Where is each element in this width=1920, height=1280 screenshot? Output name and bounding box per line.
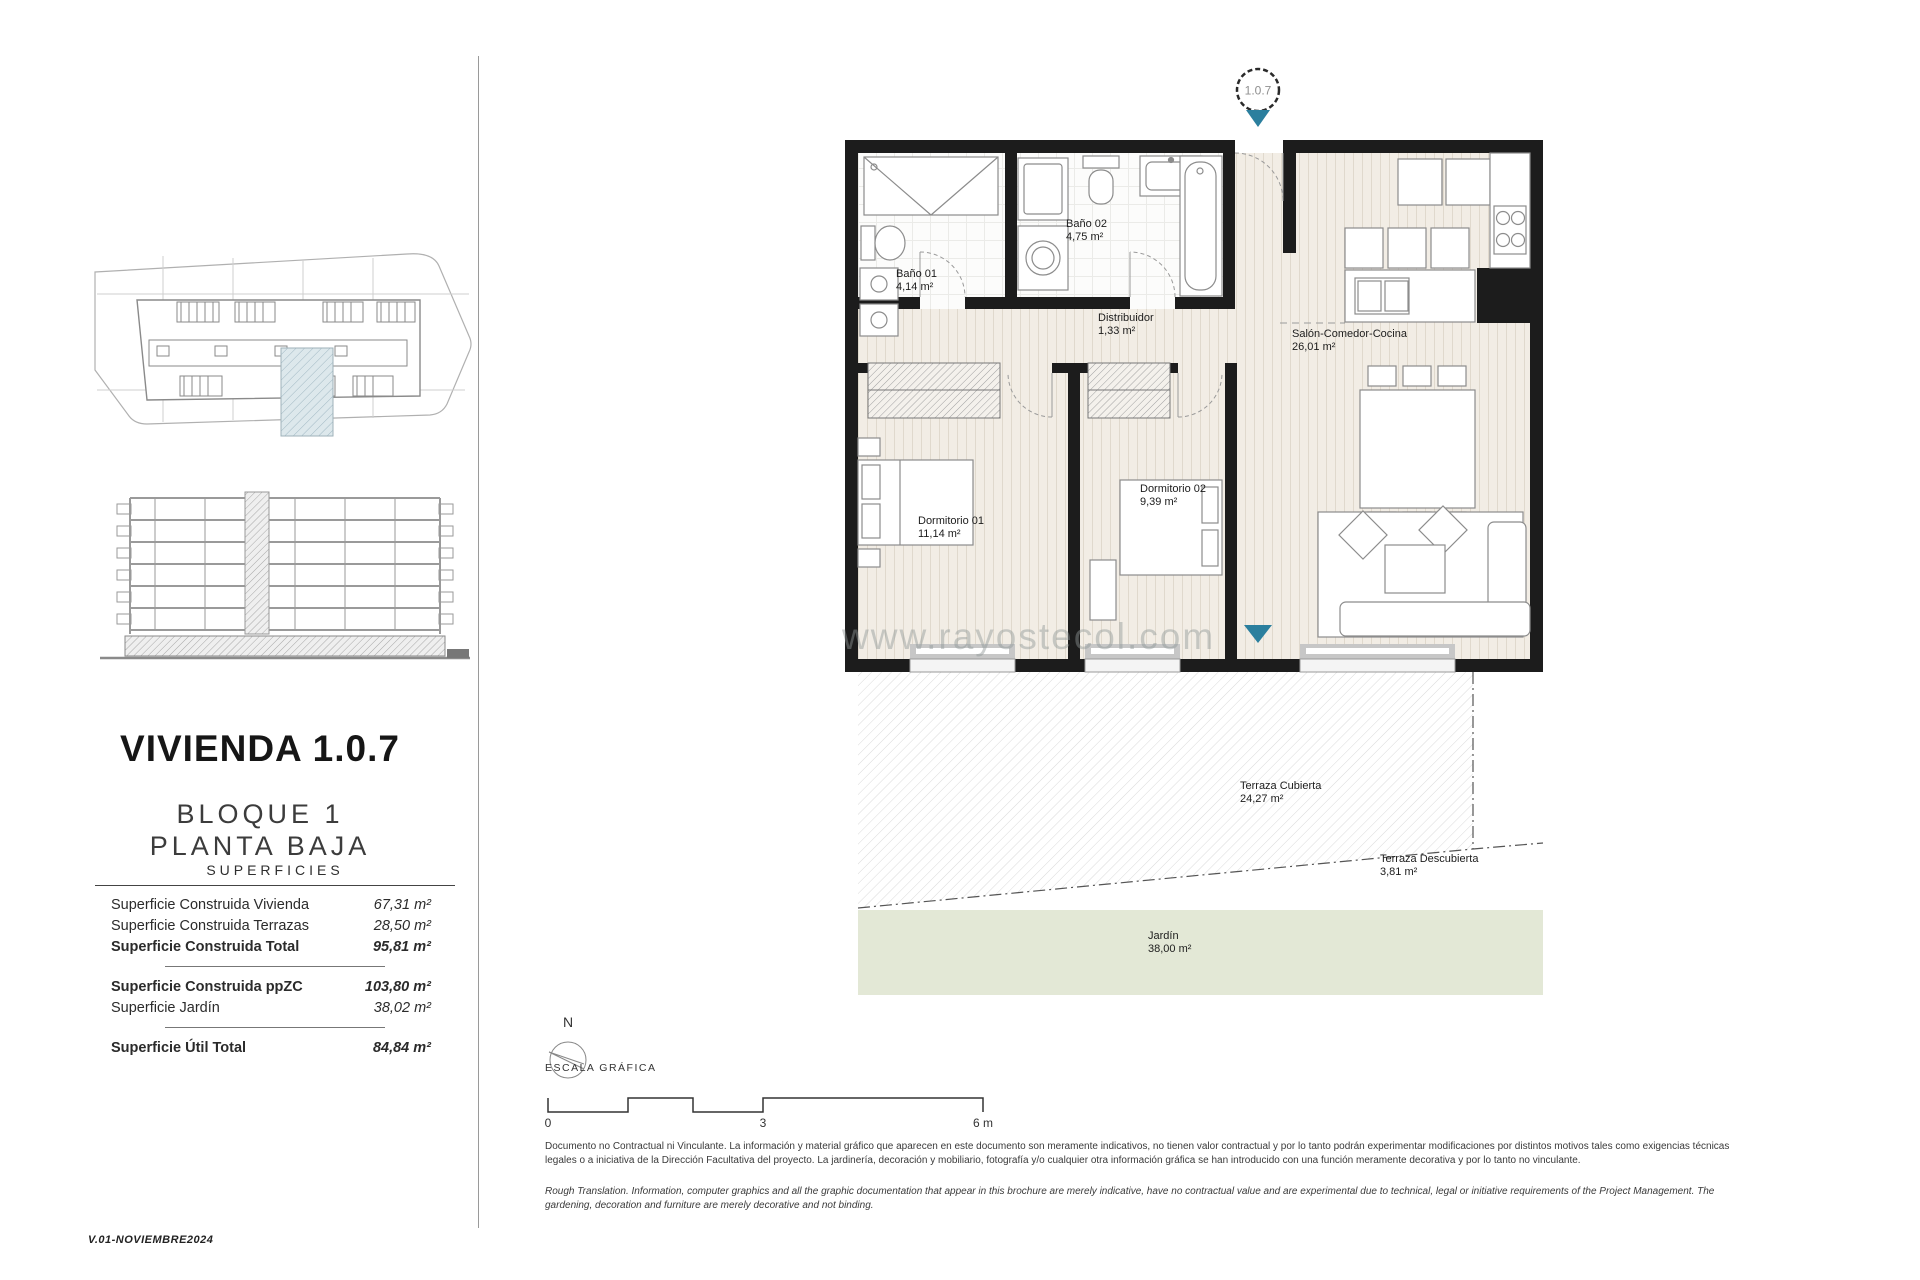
unit-subtitle: BLOQUE 1 PLANTA BAJA (40, 798, 480, 863)
scale-label: ESCALA GRÁFICA (545, 1062, 656, 1074)
room-label-terraza-cubierta: Terraza Cubierta 24,27 m² (1240, 780, 1321, 806)
garden-zone (858, 910, 1543, 995)
floor-plan: 1.0.7 Baño 01 4,14 m² Baño 02 4,75 m² Di… (840, 60, 1550, 1000)
room-label-distribuidor: Distribuidor 1,33 m² (1098, 312, 1154, 338)
unit-title: VIVIENDA 1.0.7 (40, 728, 480, 770)
superficies-table: SUPERFICIES Superficie Construida Vivien… (95, 862, 455, 1058)
block-label: BLOQUE 1 (40, 798, 480, 830)
row-label: Superficie Construida Total (111, 939, 299, 955)
room-label-bano-02: Baño 02 4,75 m² (1066, 218, 1107, 244)
version-stamp: V.01-NOVIEMBRE2024 (88, 1234, 213, 1246)
building-elevation-drawing (95, 468, 475, 708)
row-value: 84,84 m² (373, 1040, 431, 1056)
superficies-row: Superficie Jardín 38,02 m² (95, 997, 455, 1018)
rule (165, 966, 385, 967)
room-label-bano-01: Baño 01 4,14 m² (896, 268, 937, 294)
site-key-plan (85, 228, 475, 438)
north-label: N (563, 1014, 573, 1030)
superficies-row-total: Superficie Construida Total 95,81 m² (95, 936, 455, 957)
disclaimer-english: Rough Translation. Information, computer… (545, 1185, 1745, 1212)
floor-plan-page: VIVIENDA 1.0.7 BLOQUE 1 PLANTA BAJA SUPE… (0, 0, 1920, 1280)
scale-tick-6: 6 m (973, 1116, 993, 1130)
floor-label: PLANTA BAJA (40, 830, 480, 862)
scale-tick-3: 3 (760, 1116, 767, 1130)
scale-bar: 0 3 6 m (540, 1086, 1000, 1132)
room-label-terraza-descubierta: Terraza Descubierta 3,81 m² (1380, 853, 1478, 879)
superficies-row-util-total: Superficie Útil Total 84,84 m² (95, 1037, 455, 1058)
row-value: 38,02 m² (374, 1000, 431, 1016)
rule (165, 1027, 385, 1028)
info-panel: VIVIENDA 1.0.7 BLOQUE 1 PLANTA BAJA SUPE… (0, 0, 478, 1280)
room-label-dormitorio-02: Dormitorio 02 9,39 m² (1140, 483, 1206, 509)
scale-tick-0: 0 (545, 1116, 552, 1130)
panel-divider (478, 56, 479, 1228)
north-arrow: N (538, 1012, 608, 1087)
superficies-heading: SUPERFICIES (95, 862, 455, 878)
room-label-dormitorio-01: Dormitorio 01 11,14 m² (918, 515, 984, 541)
row-label: Superficie Construida Vivienda (111, 897, 309, 913)
superficies-row: Superficie Construida ppZC 103,80 m² (95, 976, 455, 997)
disclaimer-block: Documento no Contractual ni Vinculante. … (545, 1140, 1745, 1212)
row-value: 67,31 m² (374, 897, 431, 913)
row-label: Superficie Útil Total (111, 1040, 246, 1056)
row-label: Superficie Jardín (111, 1000, 220, 1016)
rule (95, 885, 455, 886)
unit-highlight (281, 348, 333, 436)
superficies-row: Superficie Construida Terrazas 28,50 m² (95, 915, 455, 936)
unit-marker: 1.0.7 (1237, 69, 1279, 111)
row-label: Superficie Construida Terrazas (111, 918, 309, 934)
disclaimer-spanish: Documento no Contractual ni Vinculante. … (545, 1140, 1745, 1167)
room-label-salon-comedor-cocina: Salón-Comedor-Cocina 26,01 m² (1292, 328, 1407, 354)
svg-text:1.0.7: 1.0.7 (1245, 84, 1272, 98)
watermark: www.rayostecol.com (842, 616, 1215, 658)
row-value: 103,80 m² (365, 979, 431, 995)
room-label-jardin: Jardín 38,00 m² (1148, 930, 1191, 956)
row-label: Superficie Construida ppZC (111, 979, 303, 995)
row-value: 95,81 m² (373, 939, 431, 955)
superficies-row: Superficie Construida Vivienda 67,31 m² (95, 894, 455, 915)
row-value: 28,50 m² (374, 918, 431, 934)
